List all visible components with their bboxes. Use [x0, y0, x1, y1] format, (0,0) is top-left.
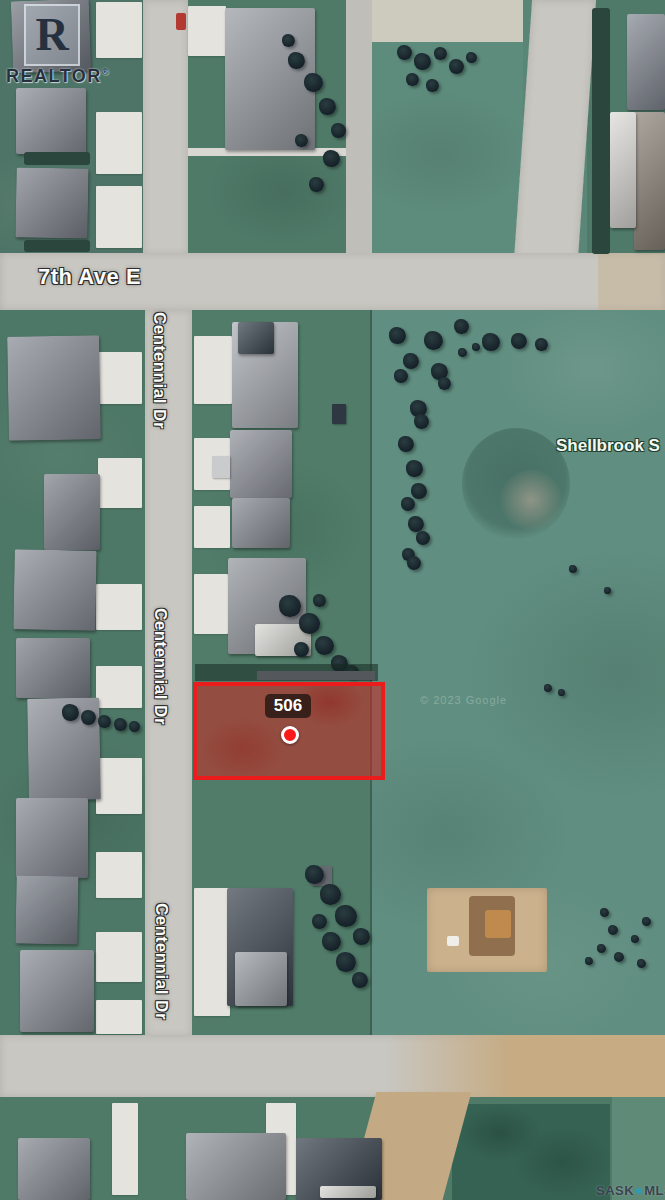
gravel-patch-top [372, 0, 523, 42]
tree [408, 516, 424, 532]
tree [535, 338, 548, 351]
tree [424, 331, 443, 350]
tree [304, 73, 323, 92]
hedge [592, 8, 610, 254]
tree [407, 556, 421, 570]
tree [414, 414, 429, 429]
driveway [96, 112, 142, 174]
realtor-logo: R REALTOR® [6, 2, 116, 94]
tree [597, 944, 606, 953]
building [235, 952, 287, 1006]
map-image[interactable]: 506 7th Ave E Centennial Dr Centennial D… [0, 0, 665, 1200]
tree [438, 377, 451, 390]
mls-dot-icon [636, 1188, 642, 1194]
building [44, 474, 100, 550]
tree [309, 177, 324, 192]
tree [319, 98, 336, 115]
driveway [194, 888, 230, 1016]
driveway [112, 1103, 138, 1195]
building [20, 950, 94, 1032]
back-lane [346, 0, 372, 255]
building [16, 88, 86, 154]
street-label-centennial-1: Centennial Dr [149, 312, 169, 429]
construction-equipment [485, 910, 511, 938]
tree [544, 684, 552, 692]
tree [416, 531, 430, 545]
building [18, 1138, 90, 1200]
parcel-number-badge: 506 [265, 694, 311, 718]
tree [403, 353, 419, 369]
google-watermark: © 2023 Google [420, 694, 507, 706]
car [176, 13, 186, 30]
driveway [188, 6, 226, 56]
tree [608, 925, 618, 935]
building [232, 498, 290, 548]
building [610, 112, 636, 228]
tree [98, 715, 111, 728]
tree [466, 52, 477, 63]
tree [129, 721, 140, 732]
driveway [194, 336, 232, 404]
hedge [24, 240, 90, 252]
building [15, 167, 88, 238]
driveway [98, 458, 142, 508]
building [225, 8, 315, 150]
tree [434, 47, 447, 60]
driveway [194, 506, 230, 548]
driveway [96, 758, 142, 814]
poi-label-shellbrook: Shellbrook S [556, 436, 660, 456]
shed [212, 456, 230, 478]
tree [279, 595, 301, 617]
construction-equipment [447, 936, 459, 946]
driveway [194, 574, 228, 634]
driveway [96, 584, 142, 630]
tree [411, 483, 427, 499]
tree [294, 642, 309, 657]
tree [631, 935, 639, 943]
driveway [96, 1000, 142, 1034]
tree [511, 333, 527, 349]
tree [397, 45, 412, 60]
tree [353, 928, 370, 945]
driveway [96, 186, 142, 248]
building [13, 549, 96, 630]
tree [305, 865, 324, 884]
building [320, 1186, 376, 1198]
driveway [96, 852, 142, 898]
building [634, 112, 665, 250]
building [7, 335, 101, 441]
driveway [96, 352, 142, 404]
parcel-506-overlay: 506 [193, 682, 385, 780]
tree [299, 613, 320, 634]
building [16, 638, 90, 698]
street-label-centennial-2: Centennial Dr [150, 608, 170, 725]
dark-field-bottom [452, 1104, 610, 1200]
road-centennial-north [143, 0, 188, 255]
tree [331, 123, 346, 138]
tree [352, 972, 368, 988]
building [627, 14, 665, 110]
street-label-centennial-3: Centennial Dr [151, 903, 171, 1020]
hedge [24, 152, 90, 165]
tree [315, 636, 334, 655]
tree [288, 52, 305, 69]
tree [389, 327, 406, 344]
sask-text: SASK [596, 1183, 634, 1198]
shed [332, 404, 346, 424]
tree [335, 905, 357, 927]
tree [312, 914, 327, 929]
tree [81, 710, 96, 725]
road-bottom-dirt [385, 1035, 665, 1097]
realtor-logo-text: REALTOR® [6, 66, 110, 87]
tree [282, 34, 295, 47]
tree [604, 587, 611, 594]
tree [558, 689, 565, 696]
tree [394, 369, 408, 383]
building [230, 430, 292, 498]
building [186, 1133, 286, 1200]
tree [406, 73, 419, 86]
building [15, 875, 78, 944]
tree [401, 497, 415, 511]
tree [414, 53, 431, 70]
tree [114, 718, 127, 731]
tree [426, 79, 439, 92]
shed-strip [257, 671, 375, 680]
tree [614, 952, 624, 962]
tree [482, 333, 500, 351]
construction-site [427, 888, 547, 972]
parcel-marker-dot [281, 726, 299, 744]
street-label-7th-ave: 7th Ave E [38, 264, 141, 290]
tree [320, 884, 341, 905]
tree [569, 565, 577, 573]
sask-mls-watermark: SASK MLS ® [596, 1183, 665, 1198]
tree [62, 704, 79, 721]
road-7th-dirt-end [598, 253, 665, 310]
realtor-logo-r: R [35, 12, 68, 58]
driveway [96, 666, 142, 708]
driveway [96, 932, 142, 982]
tree [637, 959, 646, 968]
tree [642, 917, 651, 926]
tree [454, 319, 469, 334]
tree [472, 343, 480, 351]
tree [295, 134, 308, 147]
tree [449, 59, 464, 74]
tree [458, 348, 467, 357]
field-mound-center [500, 470, 562, 530]
tree [313, 594, 326, 607]
tree [336, 952, 356, 972]
tree [585, 957, 593, 965]
tree [600, 908, 609, 917]
tree [323, 150, 340, 167]
tree [406, 460, 423, 477]
mls-text: MLS [644, 1183, 665, 1198]
building [16, 798, 88, 878]
building [238, 322, 274, 354]
realtor-logo-box: R [24, 4, 80, 66]
tree [398, 436, 414, 452]
tree [322, 932, 341, 951]
road-top-right [514, 0, 596, 260]
